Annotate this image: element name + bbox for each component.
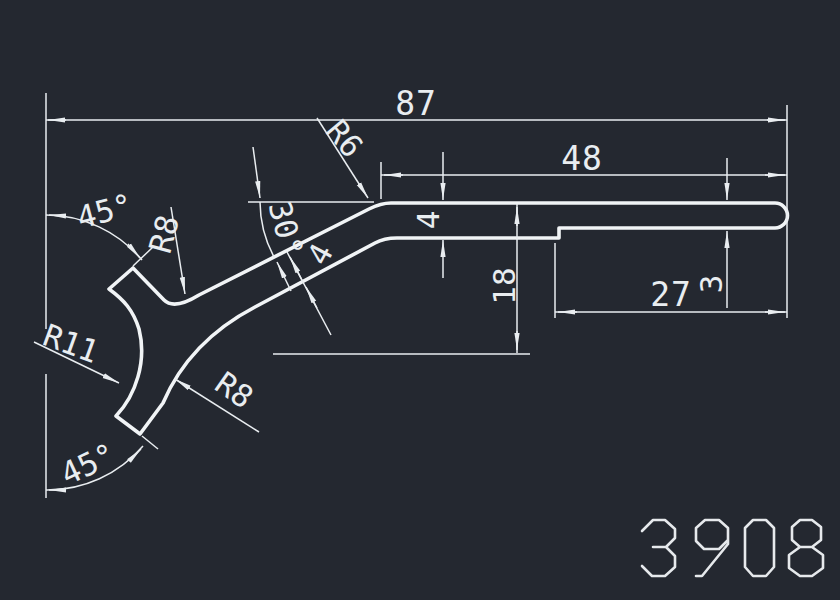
dim-value-48: 48 (561, 139, 603, 178)
digit-8 (789, 520, 823, 576)
dim-value-3: 3 (693, 275, 729, 294)
digit-9 (696, 520, 728, 576)
dim-diagonal-angle: 30° (253, 147, 311, 291)
leader-r11: R11 (34, 317, 119, 383)
leader-r6-junction: R6 (317, 113, 370, 198)
dim-value-45deg-lower: 45° (55, 436, 121, 492)
digit-3 (642, 520, 675, 576)
radius-label-r11: R11 (39, 317, 104, 370)
arrow-right (129, 449, 141, 461)
dim-value-4: 4 (410, 211, 446, 230)
arrow-left (49, 215, 66, 216)
dim-drop-height: 18 (486, 204, 522, 353)
dim-tip-thickness: 3 (693, 158, 729, 308)
dim-value-27: 27 (650, 275, 692, 314)
dim-value-30deg: 30° (261, 197, 310, 260)
radius-label-r8-valley: R8 (142, 211, 186, 256)
dim-value-45deg-upper: 45° (73, 186, 136, 235)
dim-step-length: 27 (555, 275, 787, 314)
arrow-upper (290, 257, 302, 280)
dim-overall-width: 87 (46, 84, 787, 123)
arrow-top (253, 147, 260, 198)
arrow-bottom (277, 262, 291, 291)
arrow-lower (306, 287, 317, 308)
profile-path (109, 203, 788, 434)
dim-value-18: 18 (486, 267, 522, 304)
arrow-right (128, 244, 140, 258)
cad-canvas: 87 48 27 3 18 4 4 (0, 0, 840, 600)
cad-drawing: 87 48 27 3 18 4 4 (0, 0, 840, 600)
profile-outline (109, 203, 788, 434)
dim-value-87: 87 (395, 84, 437, 123)
dim-arm-length: 48 (381, 139, 787, 178)
digit-0 (745, 520, 774, 576)
radius-label-r8-lower: R8 (209, 365, 260, 416)
part-number (642, 520, 823, 576)
leader-r8-lower: R8 (175, 365, 260, 432)
dim-upper-prong-angle: 45° (46, 186, 142, 260)
dim-arm-thickness: 4 (410, 152, 446, 278)
dim-lower-prong-angle: 45° (46, 436, 143, 492)
lower-flat-extension (142, 436, 158, 449)
